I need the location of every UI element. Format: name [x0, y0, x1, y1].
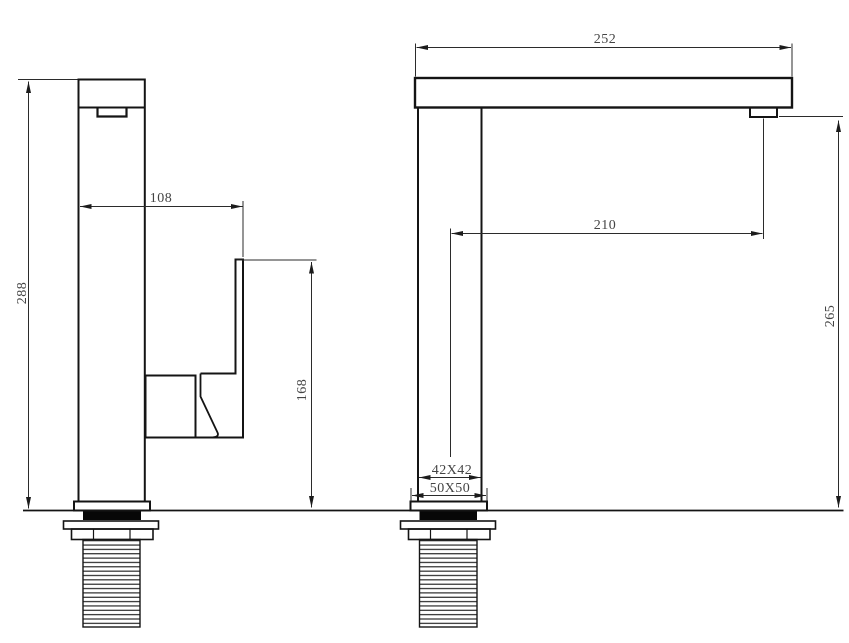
side-threaded-shank	[83, 540, 140, 628]
dim-label-288: 288	[15, 282, 30, 305]
side-view	[64, 80, 244, 628]
side-gasket	[83, 512, 141, 521]
dimension-handle-height: 168	[237, 260, 317, 508]
dim-label-210: 210	[594, 218, 617, 233]
handle-lever-joint	[201, 374, 218, 438]
dimension-spout-length: 252	[416, 32, 793, 77]
handle-cartridge	[146, 376, 196, 438]
side-mounting-nut	[72, 529, 154, 540]
dimension-base-plate: 50X50	[411, 481, 487, 502]
front-aerator-nozzle	[750, 108, 777, 118]
side-mounting-washer	[64, 521, 159, 529]
dim-label-108: 108	[150, 191, 173, 206]
front-spout-bar	[415, 78, 792, 108]
front-gasket	[420, 512, 478, 521]
dim-label-168: 168	[295, 379, 310, 402]
dim-label-50x50: 50X50	[430, 481, 471, 496]
dimension-body-section: 42X42	[419, 463, 481, 478]
faucet-dimension-drawing: 288 108 168 252 210 265 42X42	[0, 0, 849, 643]
technical-drawing-page: 288 108 168 252 210 265 42X42	[0, 0, 849, 643]
side-body-column	[79, 80, 145, 502]
front-mounting-washer	[401, 521, 496, 529]
dimension-outlet-height: 265	[779, 117, 843, 508]
dimension-spout-reach: 210	[451, 119, 764, 458]
handle-lever	[146, 260, 244, 438]
dimension-overall-height: 288	[15, 80, 78, 509]
front-mounting-nut	[409, 529, 491, 540]
front-base-plate	[411, 502, 488, 511]
dim-label-265: 265	[823, 305, 838, 328]
dim-label-42x42: 42X42	[432, 463, 473, 478]
dimension-handle-reach: 108	[80, 191, 243, 257]
front-view	[401, 78, 793, 627]
side-aerator-nozzle	[98, 109, 127, 117]
front-threaded-shank	[420, 540, 478, 628]
side-base-plate	[74, 502, 150, 511]
dim-label-252: 252	[594, 32, 617, 47]
